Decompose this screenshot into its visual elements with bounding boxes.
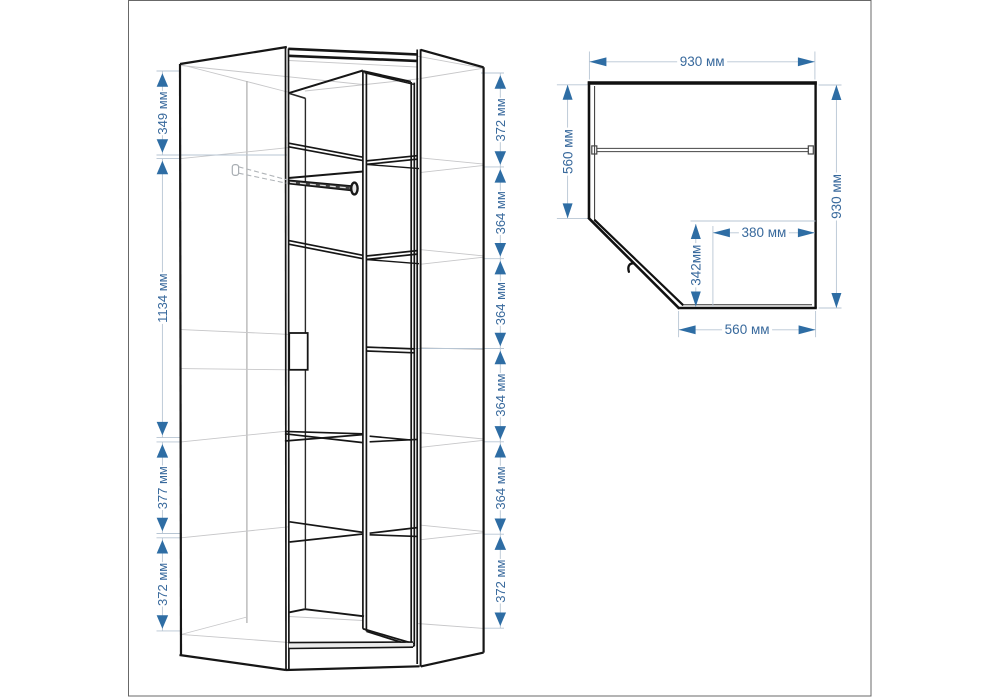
svg-text:364 мм: 364 мм — [493, 374, 508, 417]
svg-text:372 мм: 372 мм — [493, 560, 508, 603]
svg-text:372 мм: 372 мм — [493, 98, 508, 141]
svg-text:372 мм: 372 мм — [155, 563, 170, 606]
svg-text:560 мм: 560 мм — [725, 322, 770, 337]
svg-text:560 мм: 560 мм — [560, 129, 575, 174]
svg-text:364 мм: 364 мм — [493, 191, 508, 234]
svg-text:1134 мм: 1134 мм — [155, 273, 170, 323]
svg-text:349 мм: 349 мм — [155, 91, 170, 134]
svg-text:342мм: 342мм — [689, 245, 704, 286]
svg-text:377 мм: 377 мм — [155, 466, 170, 509]
svg-text:380 мм: 380 мм — [741, 225, 786, 240]
svg-text:364 мм: 364 мм — [493, 282, 508, 325]
svg-text:930 мм: 930 мм — [680, 54, 725, 69]
svg-text:930 мм: 930 мм — [829, 174, 844, 219]
svg-text:364 мм: 364 мм — [493, 466, 508, 509]
